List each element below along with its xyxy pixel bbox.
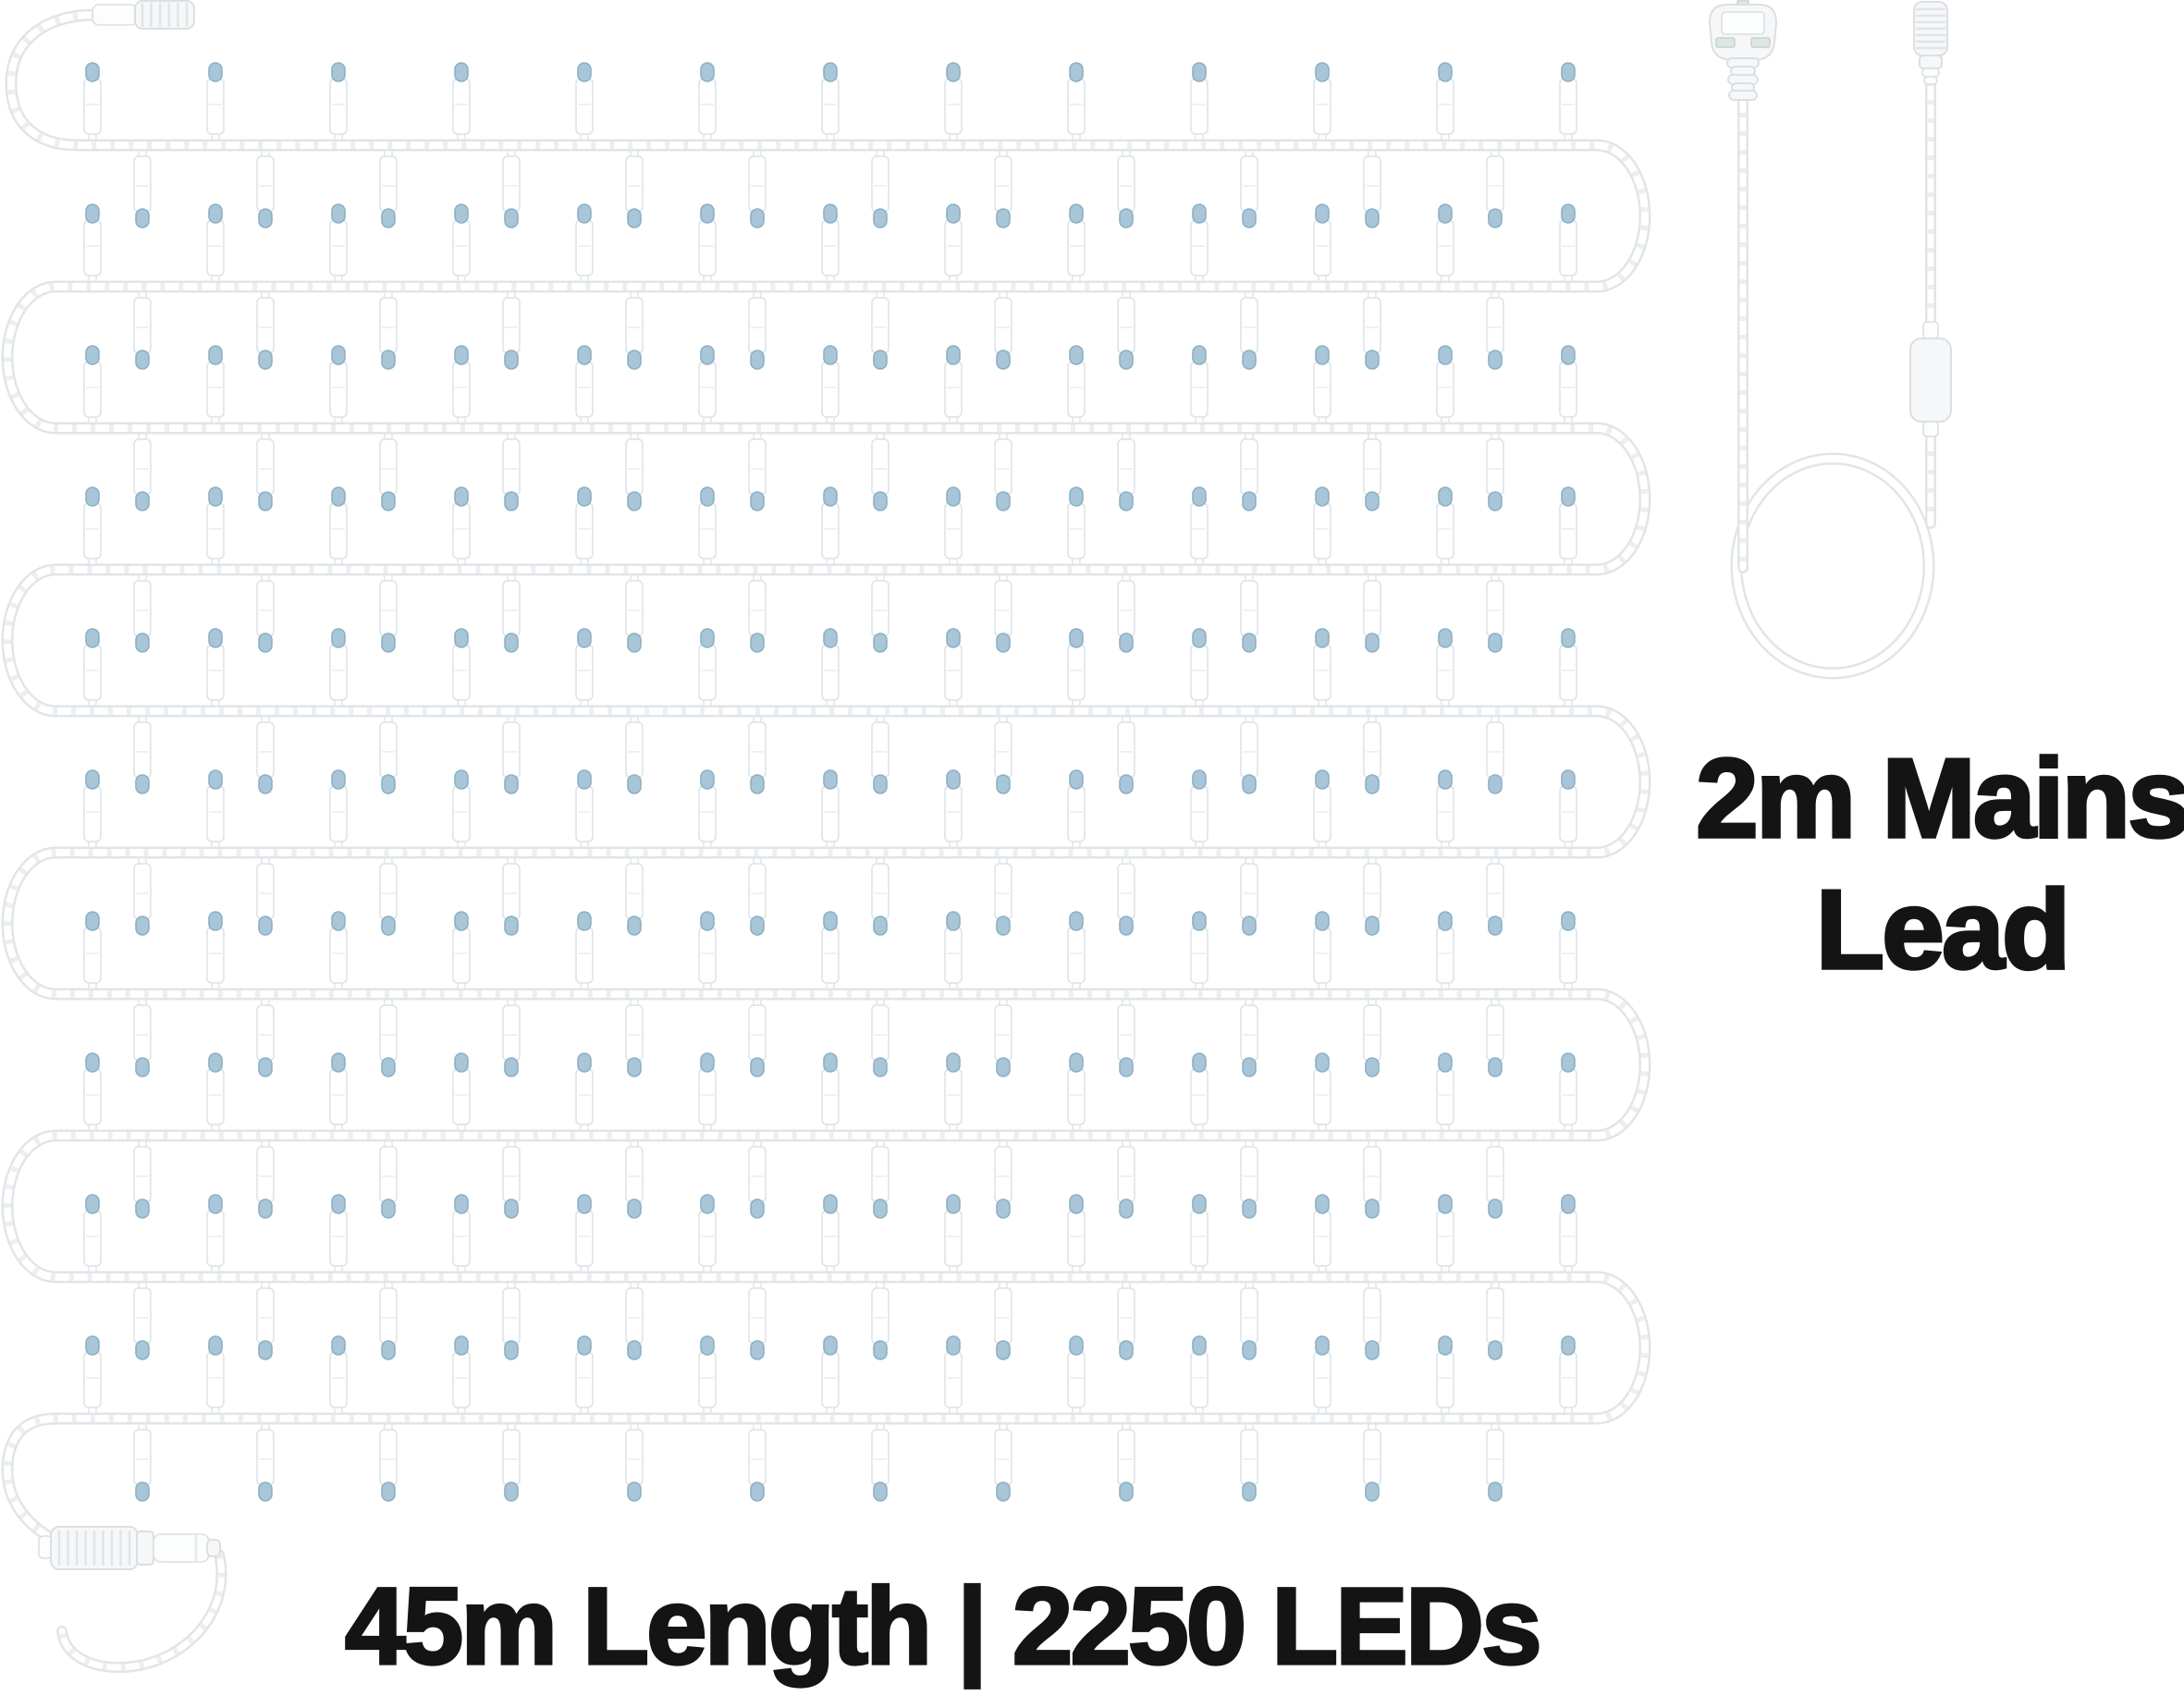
length-leds-caption: 45m Length | 2250 LEDs [345, 1572, 1540, 1681]
mains-lead-caption: 2m Mains Lead [1675, 732, 2184, 995]
product-image: 45m Length | 2250 LEDs 2m Mains Lead [0, 0, 2184, 1696]
mains-lead-figure [1710, 0, 1951, 673]
string-lights-figure [7, 1, 1645, 1667]
mains-lead-caption-line2: Lead [1675, 864, 2184, 995]
mains-lead-caption-line1: 2m Mains [1675, 732, 2184, 864]
